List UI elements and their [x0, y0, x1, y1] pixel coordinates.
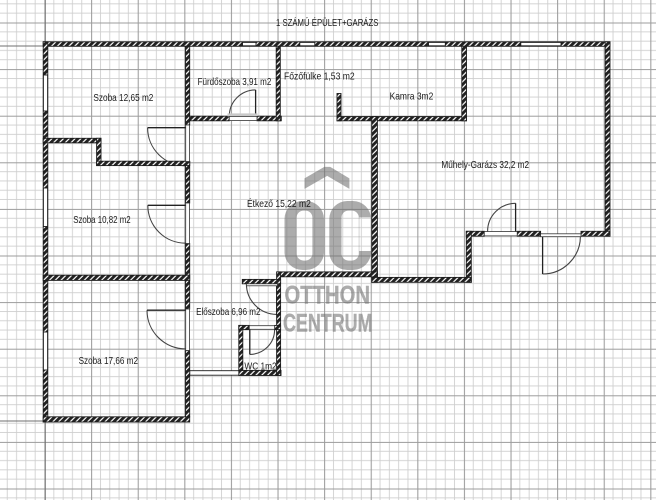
svg-text:Étkező 15,22 m2: Étkező 15,22 m2 [247, 197, 311, 210]
svg-text:Műhely-Garázs 32,2 m2: Műhely-Garázs 32,2 m2 [441, 160, 529, 171]
svg-text:Szoba 17,66 m2: Szoba 17,66 m2 [79, 356, 139, 367]
svg-text:Főzőfülke 1,53 m2: Főzőfülke 1,53 m2 [284, 71, 355, 82]
svg-text:CENTRUM: CENTRUM [283, 310, 373, 338]
svg-text:OTTHON: OTTHON [285, 281, 371, 309]
svg-text:Kamra 3m2: Kamra 3m2 [390, 92, 434, 103]
svg-text:Fürdőszoba 3,91 m2: Fürdőszoba 3,91 m2 [198, 77, 272, 88]
svg-text:Szoba 10,82 m2: Szoba 10,82 m2 [73, 215, 131, 226]
svg-text:Előszoba 6,96 m2: Előszoba 6,96 m2 [196, 307, 261, 318]
svg-text:Szoba 12,65 m2: Szoba 12,65 m2 [93, 93, 153, 104]
svg-text:WC 1m2: WC 1m2 [244, 361, 276, 372]
svg-text:1 SZÁMÚ ÉPÜLET+GARÁZS: 1 SZÁMÚ ÉPÜLET+GARÁZS [276, 16, 378, 29]
